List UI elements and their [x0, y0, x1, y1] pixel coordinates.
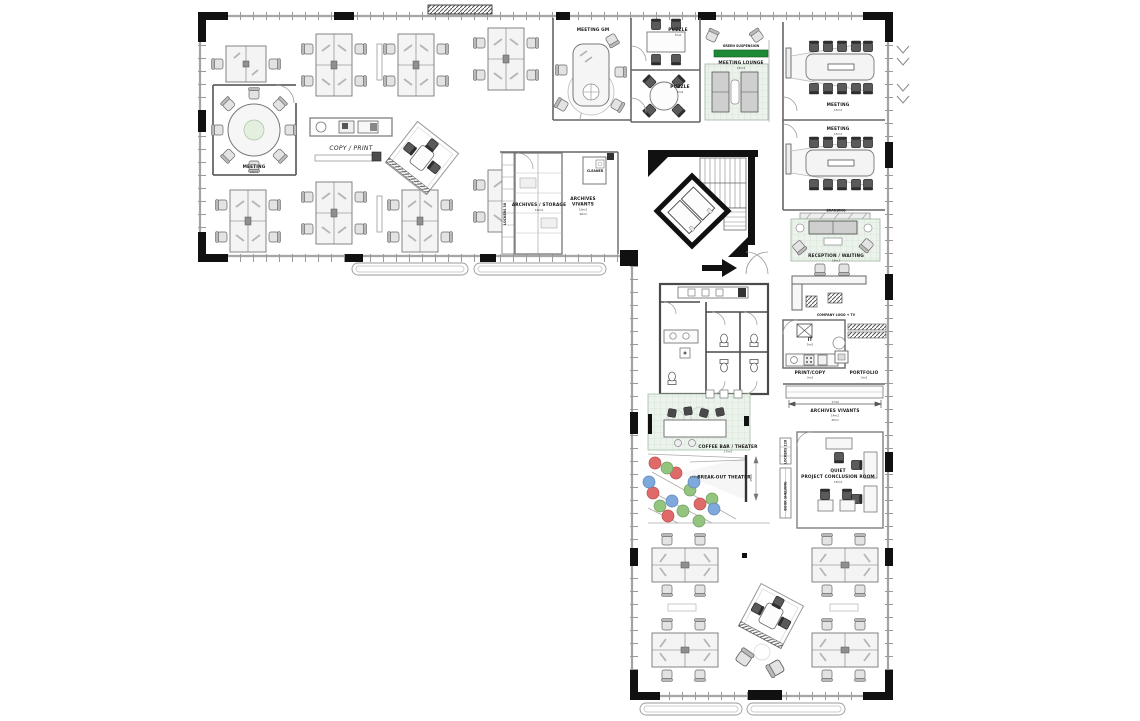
label-puzzle-top-area: 5m2 — [675, 33, 682, 37]
label-cleaner: CLEANER — [587, 169, 604, 173]
puzzle-room-bottom — [631, 74, 686, 118]
copy-print-counter — [310, 118, 392, 136]
label-meeting-right-top-area: 15m2 — [834, 108, 842, 112]
wc-block — [660, 284, 768, 394]
label-copy-print: COPY / PRINT — [329, 145, 373, 152]
label-archives-mid-1: ARCHIVES — [570, 196, 596, 202]
green-suspension-bar — [714, 50, 768, 57]
label-print-copy-area: 3m2 — [807, 376, 814, 380]
label-screen-dim: 3500 — [749, 474, 753, 482]
coffee-bar-zone — [648, 390, 750, 450]
label-branding: BRANDING — [826, 209, 846, 213]
label-meeting-gm: MEETING GM — [577, 27, 610, 33]
label-archives-mid-area: 10m2 — [579, 208, 587, 212]
label-archives-band-area: 14m2 — [831, 414, 839, 418]
label-quiet-1: QUIET — [830, 468, 845, 474]
open-office-bottom-wing — [652, 534, 878, 682]
roof-canopy-hatch — [428, 5, 492, 14]
meeting-lounge — [705, 28, 769, 122]
label-puzzle-bottom-area: 5m2 — [677, 90, 684, 94]
label-lockers-mid: LOCKERS 30 — [503, 202, 507, 225]
label-meeting-small-area: 10m2 — [250, 170, 258, 174]
label-company-logo: COMPANY LOGO + TV — [817, 313, 856, 317]
label-portfolio-area: 3m2 — [861, 376, 868, 380]
entrance-canopies — [352, 263, 845, 715]
plotter-zone — [833, 324, 886, 363]
core-stair-elevators — [648, 150, 768, 277]
label-lockers-low: LOCKERS 120 — [784, 439, 788, 464]
label-quiet-area: 15m2 — [834, 480, 842, 484]
label-green-suspension: GREEN SUSPENSION — [723, 44, 760, 48]
archives-band — [783, 384, 885, 408]
collab-pod-bottom — [739, 584, 804, 649]
floor-plan-drawing: MEETING 10m2 COPY / PRINT MEETING GM PUZ… — [0, 0, 1140, 721]
floor-plan-canvas: MEETING 10m2 COPY / PRINT MEETING GM PUZ… — [0, 0, 1140, 721]
label-reception-area: 18m2 — [832, 259, 840, 263]
entrance-arrow — [702, 259, 737, 277]
label-meeting-right-bottom-area: 15m2 — [834, 132, 842, 136]
quiet-room-zone — [780, 432, 883, 528]
label-book-shelving: BOOK SHELVING — [784, 481, 788, 510]
breakout-theater-zone — [643, 454, 770, 527]
puzzle-room-top — [631, 19, 685, 66]
label-meeting-lounge-area: 15m2 — [737, 66, 745, 70]
label-coffee-bar-area: 17m2 — [724, 450, 732, 454]
label-archives-storage-area: 10m2 — [535, 208, 543, 212]
meeting-room-small — [212, 85, 297, 175]
label-it-area: 5m2 — [807, 343, 814, 347]
reception-desk-zone — [792, 264, 866, 310]
label-archives-mid-length: 40ml — [579, 212, 586, 216]
label-archives-band-length: 45ml — [831, 418, 838, 422]
meeting-rooms-right — [783, 22, 885, 210]
label-archives-dim: 1744 — [831, 400, 839, 404]
label-breakout: BREAK-OUT THEATER — [697, 475, 751, 481]
collab-pod-top — [386, 122, 459, 195]
facade-chevrons — [897, 46, 909, 103]
